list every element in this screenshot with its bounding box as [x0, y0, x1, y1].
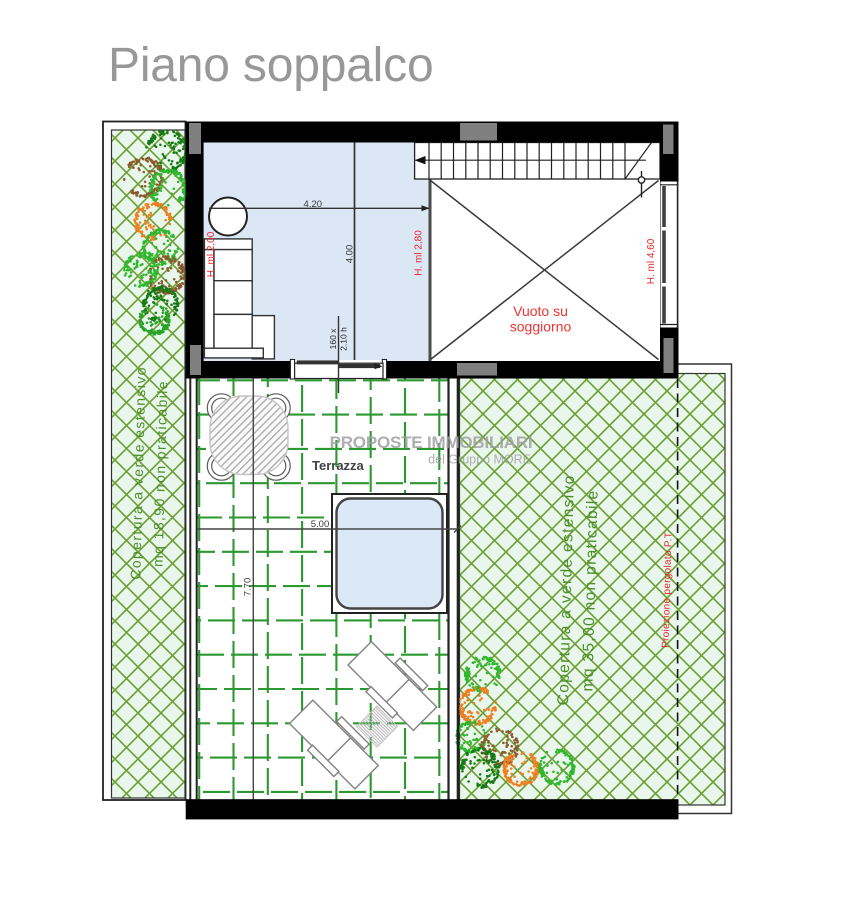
svg-text:PROPOSTE IMMOBILIARI: PROPOSTE IMMOBILIARI — [330, 433, 533, 452]
svg-text:del Gruppo MORE: del Gruppo MORE — [428, 453, 531, 467]
svg-text:4.20: 4.20 — [304, 199, 323, 210]
svg-text:H. ml 2,00: H. ml 2,00 — [206, 231, 217, 277]
svg-text:soggiorno: soggiorno — [510, 319, 572, 335]
svg-text:Vuoto su: Vuoto su — [513, 303, 568, 319]
svg-text:2.10 h: 2.10 h — [339, 327, 349, 351]
svg-text:160 x: 160 x — [328, 328, 338, 350]
svg-text:Piano soppalco: Piano soppalco — [108, 39, 433, 92]
svg-text:4.00: 4.00 — [344, 245, 355, 264]
svg-text:5.00: 5.00 — [311, 519, 330, 530]
svg-text:Terrazza: Terrazza — [312, 458, 365, 473]
svg-text:7.70: 7.70 — [243, 578, 254, 597]
svg-text:H. ml 2,80: H. ml 2,80 — [414, 230, 425, 276]
svg-text:H. ml 4,60: H. ml 4,60 — [646, 238, 657, 284]
